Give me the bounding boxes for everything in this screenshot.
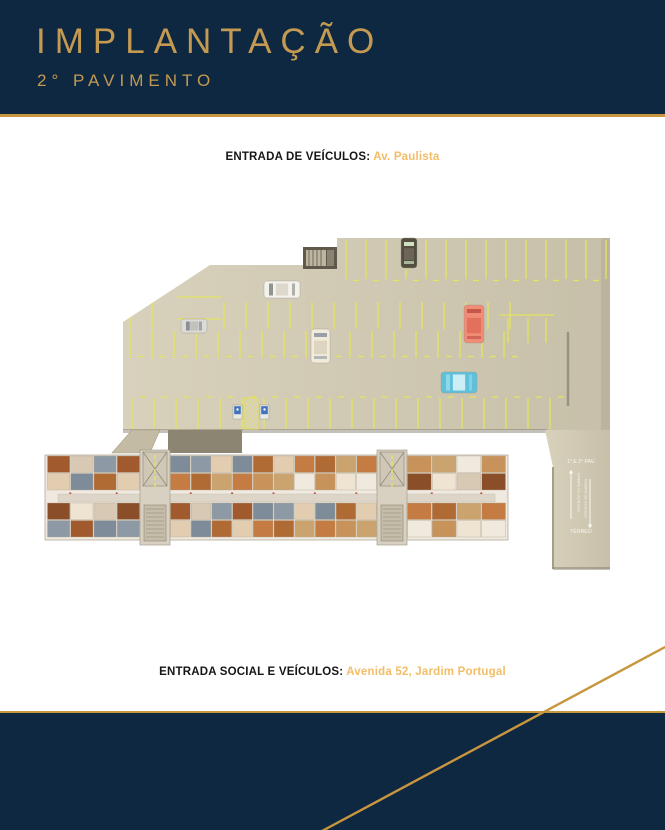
site-plan: 1° E 2° PAV. RAMPA DE ACESSO RAMPA DE AC… [0,0,665,830]
silver-hatch-car [181,319,207,333]
down-ramp-connector [168,430,242,453]
central-corridor [58,494,495,502]
ramp-up-text: RAMPA DE ACESSO [577,473,581,512]
brochure-page: IMPLANTAÇÃO 2° PAVIMENTO ENTRADA DE VEÍC… [0,0,665,830]
vehicle-ramp [545,430,610,569]
arrow-down-icon [588,479,592,529]
accessible-parking-marking [233,398,269,429]
parking-lines [130,240,606,429]
ramp-top-label: 1° E 2° PAV. [567,459,595,465]
elevator-core [140,450,170,545]
page-header: IMPLANTAÇÃO 2° PAVIMENTO [0,0,665,117]
ramp-bottom-shadow [553,567,610,570]
vehicle-entrance-label: ENTRADA DE VEÍCULOS: [225,151,370,163]
arrow-up-icon [569,470,573,520]
dark-van-car [401,238,417,268]
cream-car [311,329,330,363]
social-entrance-value: Avenida 52, Jardim Portugal [346,666,506,678]
social-entrance-label: ENTRADA SOCIAL E VEÍCULOS: [159,666,343,678]
ramp-annotations: 1° E 2° PAV. RAMPA DE ACESSO RAMPA DE AC… [567,459,595,535]
garage-floor [123,238,610,430]
garage-stair-block [303,247,337,269]
page-title: IMPLANTAÇÃO [36,22,383,62]
ramp-down-text: RAMPA DE ACESSO [584,479,588,518]
vehicle-entrance-value: Av. Paulista [373,151,439,163]
social-entrance-caption: ENTRADA SOCIAL E VEÍCULOS: Avenida 52, J… [0,666,665,678]
residential-block [45,450,508,545]
connector-stairs [112,430,160,453]
blue-car [441,372,477,393]
garage-right-wall [601,238,610,430]
page-subtitle: 2° PAVIMENTO [37,71,215,91]
ramp-bottom-label: TÉRREO [570,528,592,535]
page-footer [0,711,665,830]
vehicle-entrance-caption: ENTRADA DE VEÍCULOS: Av. Paulista [0,151,665,163]
parked-cars [181,238,484,393]
garage-bottom-shadow [123,429,547,433]
salmon-car [464,305,484,343]
white-sedan-car [264,281,300,298]
wheelchair-sign-icon [260,405,269,419]
elevator-core [377,450,407,545]
wheelchair-sign-icon [233,405,242,419]
